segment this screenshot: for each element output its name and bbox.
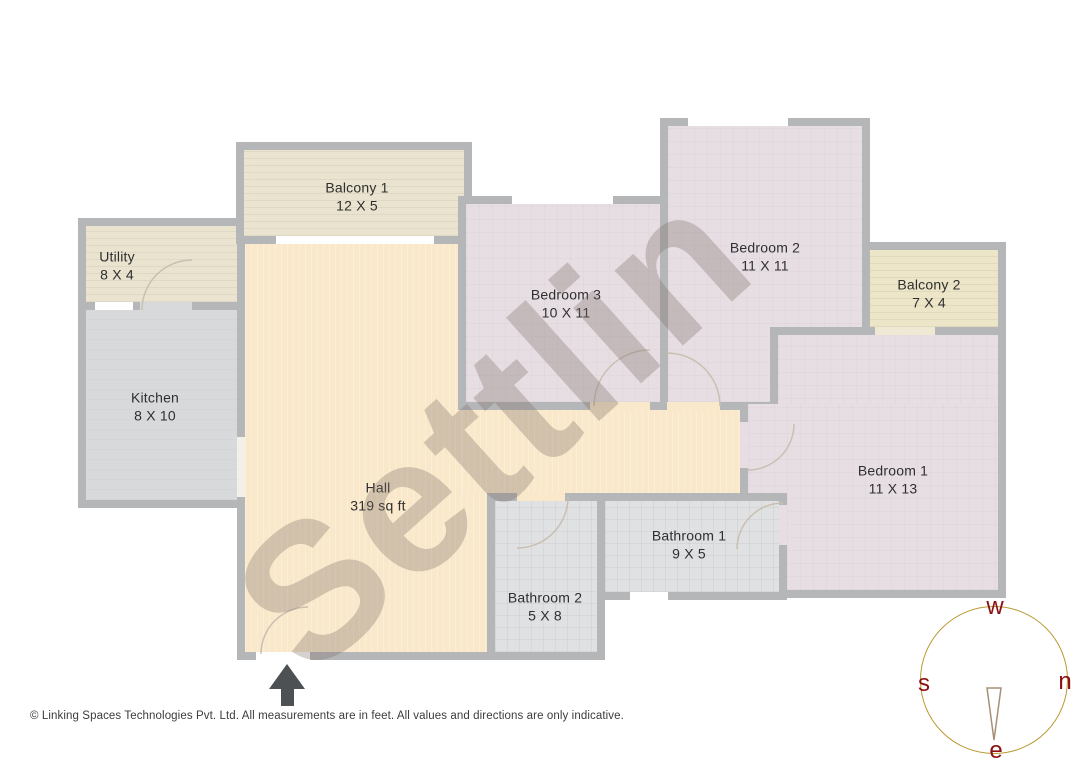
room-dims: 12 X 5 (325, 197, 388, 215)
window (688, 118, 788, 126)
window (630, 592, 668, 600)
room-name: Bathroom 1 (652, 527, 726, 545)
room-label-hall: Hall 319 sq ft (350, 479, 406, 516)
floorplan-canvas: Balcony 1 12 X 5 Utility 8 X 4 Kitchen 8… (0, 0, 1080, 764)
room-label-utility: Utility 8 X 4 (99, 248, 135, 285)
room-name: Bedroom 1 (858, 462, 928, 480)
door-opening-utility (140, 302, 192, 310)
room-dims: 11 X 11 (730, 257, 800, 275)
room-name: Bedroom 3 (531, 286, 601, 304)
room-label-bathroom-1: Bathroom 1 9 X 5 (652, 527, 726, 564)
door-opening-entrance (256, 652, 310, 660)
compass-west: w (986, 593, 1003, 621)
door-opening-bathroom-1 (779, 505, 787, 545)
door-opening-kitchen (237, 437, 245, 497)
room-dims: 11 X 13 (858, 480, 928, 498)
room-label-kitchen: Kitchen 8 X 10 (131, 389, 179, 426)
compass-north: n (1058, 668, 1071, 696)
room-label-bedroom-3: Bedroom 3 10 X 11 (531, 286, 601, 323)
room-dims: 9 X 5 (652, 545, 726, 563)
room-corridor (462, 410, 740, 493)
window (512, 196, 613, 204)
compass-south: s (918, 670, 930, 698)
room-dims: 7 X 4 (897, 294, 960, 312)
entrance-arrow-icon (269, 664, 305, 706)
compass-east: e (989, 737, 1002, 764)
room-bathroom-2 (487, 493, 605, 660)
door-opening-bedroom-3 (590, 402, 650, 410)
room-name: Kitchen (131, 389, 179, 407)
room-name: Balcony 1 (325, 179, 388, 197)
room-label-bathroom-2: Bathroom 2 5 X 8 (508, 589, 582, 626)
room-name: Balcony 2 (897, 276, 960, 294)
room-dims: 10 X 11 (531, 304, 601, 322)
window (95, 302, 133, 310)
room-hall (237, 236, 494, 660)
footer-disclaimer: © Linking Spaces Technologies Pvt. Ltd. … (30, 710, 624, 722)
room-name: Bedroom 2 (730, 239, 800, 257)
window (875, 327, 935, 335)
room-dims: 8 X 10 (131, 407, 179, 425)
room-dims: 5 X 8 (508, 607, 582, 625)
door-opening-bathroom-2 (517, 493, 565, 501)
door-opening-bedroom-1 (740, 422, 748, 468)
room-name: Utility (99, 248, 135, 266)
room-bedroom-1-upper (770, 327, 1006, 412)
room-label-balcony-1: Balcony 1 12 X 5 (325, 179, 388, 216)
room-name: Bathroom 2 (508, 589, 582, 607)
compass: w s n e (912, 598, 1076, 762)
arrow-head (269, 664, 305, 689)
room-label-bedroom-2: Bedroom 2 11 X 11 (730, 239, 800, 276)
arrow-stem (281, 689, 294, 706)
window (276, 236, 434, 244)
room-label-balcony-2: Balcony 2 7 X 4 (897, 276, 960, 313)
room-dims: 319 sq ft (350, 497, 406, 515)
room-label-bedroom-1: Bedroom 1 11 X 13 (858, 462, 928, 499)
room-dims: 8 X 4 (99, 266, 135, 284)
door-opening-bedroom-2 (667, 402, 720, 410)
room-name: Hall (350, 479, 406, 497)
